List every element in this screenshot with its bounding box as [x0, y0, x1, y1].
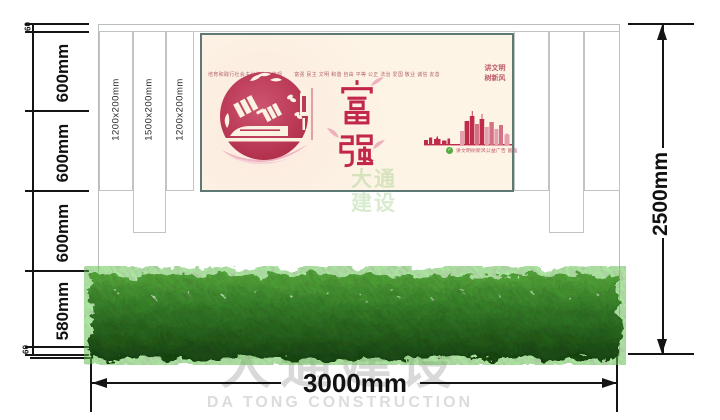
leaf-flourish-icon	[326, 127, 340, 140]
panel-size-label: 1500x200mm	[144, 55, 155, 165]
leaf-flourish-icon	[370, 76, 386, 88]
arrowhead-down-icon	[657, 339, 667, 354]
poster-caption-text: 讲文明树新风公益广告 富强	[456, 147, 518, 154]
poster-core-values: 富强 民主 文明 和谐 自由 平等 公正 法治 爱国 敬业 诚信 友善	[294, 72, 440, 78]
dim-label-600-2: 600mm	[53, 113, 73, 193]
poster-caption: ✓ 讲文明树新风公益广告 富强	[446, 147, 518, 154]
papercut-emblem-illustration	[212, 68, 316, 172]
dim-label-3000: 3000mm	[280, 368, 430, 399]
dim-right-line-top	[662, 25, 664, 148]
arrowhead-up-icon	[657, 25, 667, 40]
watermark-logo: 大通 建设	[349, 168, 399, 216]
arrowhead-left-icon	[92, 378, 107, 388]
arrowhead-right-icon	[602, 378, 617, 388]
panel-size-label: 1200x200mm	[111, 55, 122, 165]
dim-label-600-3: 600mm	[53, 193, 73, 273]
dim-tick	[25, 23, 89, 25]
dim-tick	[25, 354, 89, 356]
dim-label-60-bottom: 60	[22, 335, 31, 365]
wall-panel-right-3	[584, 31, 620, 191]
dim-label-580: 580mm	[53, 271, 73, 351]
dim-label-2500: 2500mm	[649, 139, 673, 249]
dim-bottom-line-right	[420, 382, 617, 384]
elevation-drawing: 大通建设 DA TONG CONSTRUCTION 1200x200mm 150…	[0, 0, 720, 420]
wall-panel-right-1	[514, 31, 549, 191]
dim-label-600-1: 600mm	[53, 33, 73, 113]
green-badge-icon: ✓	[446, 147, 453, 154]
hedge-plant-strip	[84, 263, 626, 365]
wall-panel-right-2	[549, 31, 584, 233]
dim-ext-stub	[30, 357, 91, 359]
leaf-flourish-icon	[372, 139, 386, 151]
dim-bottom-line-left	[92, 382, 281, 384]
dim-right-line-bottom	[662, 238, 664, 355]
city-skyline-illustration	[424, 109, 514, 147]
dim-label-60-top: 60	[24, 12, 33, 42]
poster-right-slogan: 讲文明 树新风	[478, 64, 512, 83]
panel-size-label: 1200x200mm	[175, 55, 186, 165]
